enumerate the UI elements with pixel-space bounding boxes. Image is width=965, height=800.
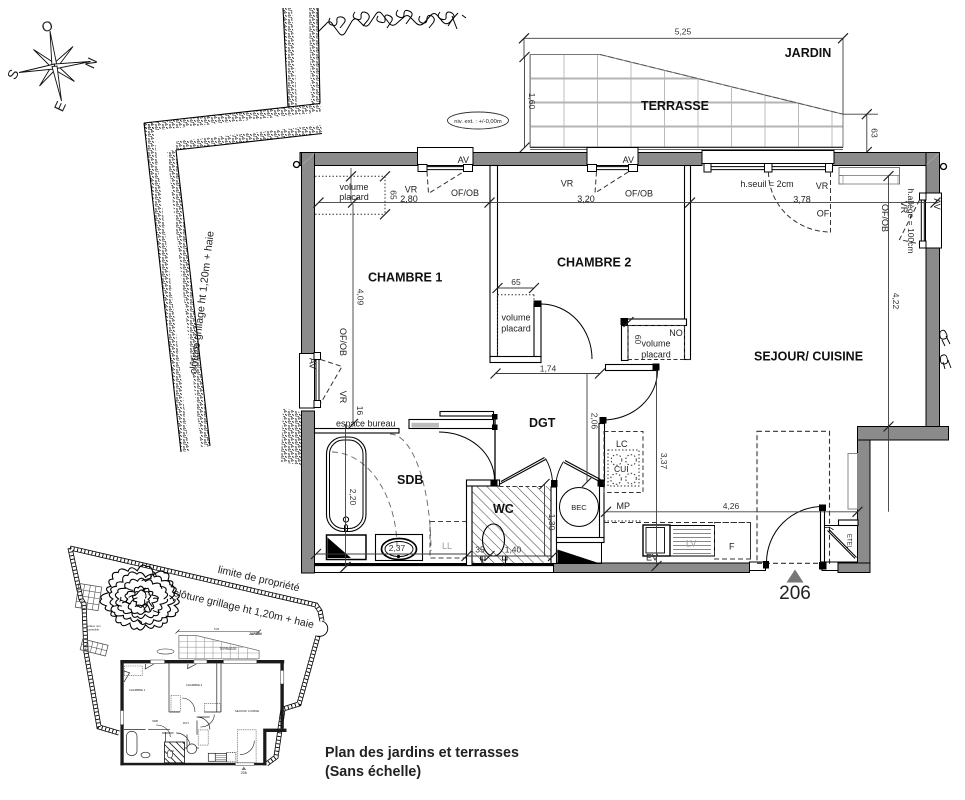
svg-text:JARDIN: JARDIN bbox=[249, 632, 262, 636]
svg-text:placard: placard bbox=[501, 324, 531, 334]
svg-text:1,74: 1,74 bbox=[540, 364, 557, 374]
svg-text:AV: AV bbox=[623, 155, 634, 165]
svg-text:206: 206 bbox=[779, 583, 811, 604]
svg-text:OF/OB: OF/OB bbox=[625, 189, 653, 199]
svg-text:Plan des jardins et terrasses: Plan des jardins et terrasses bbox=[325, 745, 519, 761]
svg-text:(Sans échelle): (Sans échelle) bbox=[325, 764, 421, 780]
svg-text:LC: LC bbox=[616, 439, 628, 449]
svg-text:TERRASSE: TERRASSE bbox=[641, 99, 709, 113]
svg-text:CUI: CUI bbox=[614, 464, 629, 474]
svg-text:60: 60 bbox=[633, 335, 643, 345]
svg-text:1,30: 1,30 bbox=[547, 514, 557, 531]
svg-text:2,06: 2,06 bbox=[590, 413, 600, 430]
svg-text:16: 16 bbox=[355, 406, 365, 416]
svg-text:TERRASSE: TERRASSE bbox=[219, 647, 236, 651]
svg-text:3,37: 3,37 bbox=[659, 453, 669, 470]
svg-text:CHAMBRE 1: CHAMBRE 1 bbox=[129, 688, 146, 692]
svg-text:SEJOUR/ CUISINE: SEJOUR/ CUISINE bbox=[235, 709, 259, 713]
svg-text:SDB: SDB bbox=[152, 719, 158, 723]
svg-text:2,37: 2,37 bbox=[389, 543, 406, 553]
svg-text:h.allège = 100cm: h.allège = 100cm bbox=[906, 189, 916, 254]
svg-text:h.seuil = 2cm: h.seuil = 2cm bbox=[740, 179, 793, 189]
svg-text:espace bureau: espace bureau bbox=[336, 419, 396, 429]
svg-text:volume: volume bbox=[339, 182, 368, 192]
svg-text:LL: LL bbox=[442, 541, 452, 551]
svg-text:BEC: BEC bbox=[571, 503, 587, 512]
svg-text:2,20: 2,20 bbox=[348, 489, 358, 506]
svg-text:VR: VR bbox=[338, 391, 348, 404]
svg-text:OF/OB: OF/OB bbox=[451, 188, 479, 198]
svg-text:WC: WC bbox=[170, 749, 175, 753]
svg-text:VR: VR bbox=[561, 179, 574, 189]
svg-text:4,26: 4,26 bbox=[723, 501, 740, 511]
svg-text:4,22: 4,22 bbox=[891, 293, 901, 310]
svg-text:DGT: DGT bbox=[183, 721, 189, 725]
svg-text:1,60: 1,60 bbox=[527, 93, 537, 110]
svg-text:63: 63 bbox=[870, 128, 880, 138]
svg-text:volume: volume bbox=[641, 339, 670, 349]
svg-text:SEJOUR/ CUISINE: SEJOUR/ CUISINE bbox=[754, 350, 863, 364]
svg-text:CHAMBRE 1: CHAMBRE 1 bbox=[368, 271, 442, 285]
svg-text:volume: volume bbox=[501, 313, 530, 323]
svg-text:5,25: 5,25 bbox=[675, 27, 692, 37]
svg-text:4,09: 4,09 bbox=[356, 289, 366, 306]
svg-text:LV: LV bbox=[686, 539, 696, 549]
svg-text:1,40: 1,40 bbox=[505, 545, 522, 555]
svg-text:VR: VR bbox=[816, 181, 829, 191]
svg-text:206: 206 bbox=[241, 771, 247, 775]
svg-text:AV: AV bbox=[458, 155, 469, 165]
svg-text:65: 65 bbox=[389, 190, 399, 200]
svg-text:DGT: DGT bbox=[529, 416, 556, 430]
svg-text:niv. ext. : +/-0,00m: niv. ext. : +/-0,00m bbox=[454, 119, 502, 125]
svg-text:CHAMBRE 2: CHAMBRE 2 bbox=[557, 256, 631, 270]
svg-text:accessible: accessible bbox=[86, 628, 100, 632]
svg-text:OF: OF bbox=[817, 209, 830, 219]
svg-text:placard: placard bbox=[641, 350, 671, 360]
svg-text:MP: MP bbox=[617, 501, 631, 511]
svg-text:65: 65 bbox=[511, 277, 521, 287]
svg-text:placard: placard bbox=[339, 192, 369, 202]
svg-text:CHAMBRE 2: CHAMBRE 2 bbox=[186, 683, 203, 687]
svg-text:JARDIN: JARDIN bbox=[785, 46, 832, 60]
svg-text:35: 35 bbox=[475, 545, 485, 555]
svg-text:WC: WC bbox=[493, 502, 514, 516]
svg-text:F: F bbox=[729, 542, 735, 552]
svg-text:VR: VR bbox=[405, 185, 418, 195]
svg-text:NO: NO bbox=[669, 328, 683, 338]
svg-text:SDB: SDB bbox=[397, 473, 423, 487]
svg-text:5,25: 5,25 bbox=[214, 627, 220, 631]
svg-text:OF/OB: OF/OB bbox=[338, 328, 348, 356]
